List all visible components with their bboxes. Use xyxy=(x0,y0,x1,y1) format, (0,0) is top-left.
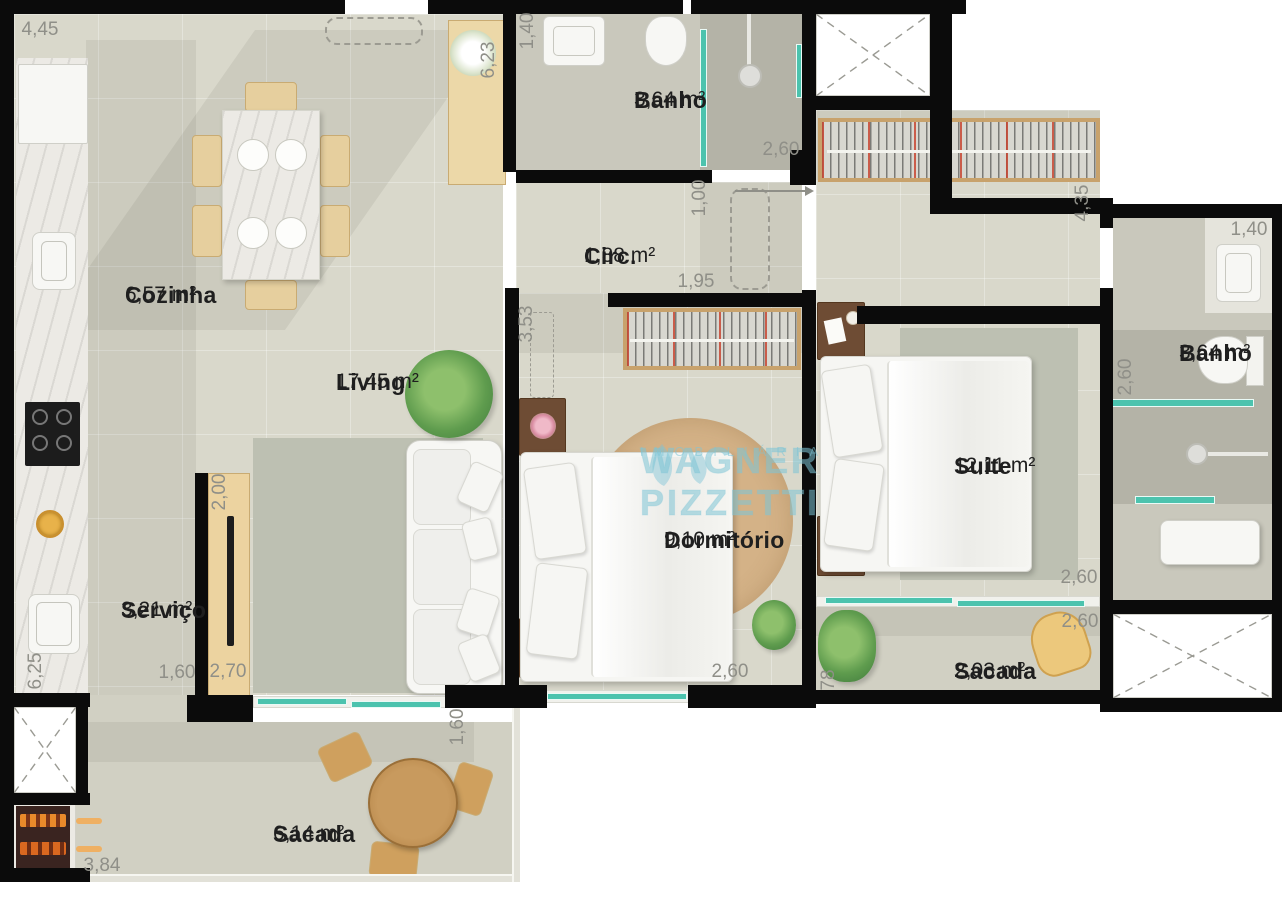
shaft xyxy=(14,707,76,793)
wall xyxy=(503,14,516,172)
tank-basin xyxy=(36,602,72,646)
living-sliding-glass xyxy=(258,699,346,704)
shower-glass xyxy=(1136,497,1214,503)
fruit-bowl xyxy=(36,510,64,538)
wall xyxy=(857,306,1100,324)
bbq-handle xyxy=(76,818,102,824)
room-area: 6,57 m² xyxy=(125,283,196,307)
balcony-table xyxy=(368,758,458,848)
suite-sliding-glass xyxy=(826,598,952,603)
dining-chair xyxy=(192,135,222,187)
dimension-label: 1,60 xyxy=(447,709,469,746)
toilet xyxy=(645,16,687,66)
wall xyxy=(1100,288,1113,708)
room-area: 17,45 m² xyxy=(336,370,419,394)
dimension-label: 2,60 xyxy=(712,661,749,683)
dining-chair xyxy=(245,82,297,112)
room-area: 3,21 m² xyxy=(121,598,192,622)
living-sliding-glass xyxy=(352,702,440,707)
dimension-label: 2,60 xyxy=(1062,611,1099,633)
flowers xyxy=(530,413,556,439)
nightstand xyxy=(519,398,566,456)
pillow xyxy=(523,462,587,560)
wall xyxy=(1113,204,1272,218)
room-area: 1,88 m² xyxy=(584,244,655,268)
dimension-label: 4,45 xyxy=(22,19,59,41)
shower-glass xyxy=(797,45,801,97)
wall xyxy=(608,293,808,307)
dimension-label: 6,25 xyxy=(25,653,47,690)
sofa-cushion xyxy=(413,529,471,605)
shaft xyxy=(1113,614,1272,698)
wall xyxy=(0,693,90,707)
dining-table xyxy=(222,110,320,280)
wall xyxy=(0,0,345,14)
burner xyxy=(32,435,48,451)
dimension-label: 2,60 xyxy=(763,139,800,161)
burner xyxy=(56,409,72,425)
wall xyxy=(802,14,816,166)
balcony-railing xyxy=(512,706,520,882)
entry-arrow-head xyxy=(805,186,814,196)
wall-frame xyxy=(683,0,691,14)
wall xyxy=(505,288,519,708)
tv-wall xyxy=(195,473,208,697)
wall xyxy=(802,690,1113,704)
shower-head xyxy=(738,64,762,88)
plate xyxy=(237,217,269,249)
sink-basin xyxy=(41,241,67,281)
kitchen-sink xyxy=(32,232,76,290)
wall xyxy=(428,0,966,14)
shaft-x-icon xyxy=(816,14,930,96)
dimension-label: 2,00 xyxy=(209,474,231,511)
wall xyxy=(516,170,712,183)
entry-door-swing xyxy=(730,188,770,290)
dimension-label: 1,40 xyxy=(517,13,539,50)
bbq-skewers xyxy=(20,814,66,827)
dining-chair xyxy=(245,280,297,310)
bbq-skewers xyxy=(20,842,66,855)
wall xyxy=(0,0,14,882)
wall xyxy=(806,96,952,110)
shaft-x-icon xyxy=(14,707,76,793)
shower-head xyxy=(1186,443,1208,465)
dimension-label: 3,53 xyxy=(516,306,538,343)
suite-closet xyxy=(818,118,1100,182)
tv xyxy=(227,516,234,646)
wall xyxy=(930,14,952,214)
wall xyxy=(1272,204,1282,710)
wall xyxy=(0,793,90,805)
burner xyxy=(32,409,48,425)
dimension-label: 1,60 xyxy=(159,662,196,684)
shower-glass xyxy=(1113,400,1253,406)
entry-arrow xyxy=(735,190,807,192)
wall xyxy=(187,695,253,722)
dormitorio-window-glass xyxy=(548,694,686,699)
sink-basin xyxy=(1225,253,1252,293)
bath-sink xyxy=(543,16,605,66)
bath-sink xyxy=(1216,244,1261,302)
laundry-tank xyxy=(28,594,80,654)
dimension-label: 2,60 xyxy=(1115,359,1137,396)
sofa xyxy=(406,440,502,694)
dimension-label: 2,60 xyxy=(1061,567,1098,589)
dormitorio-plant xyxy=(752,600,796,650)
paper xyxy=(824,317,847,344)
wall xyxy=(0,868,90,882)
room-area: 9,10 m² xyxy=(664,528,735,552)
floor-service-door xyxy=(88,695,188,722)
wall xyxy=(1113,600,1272,614)
plate xyxy=(237,139,269,171)
dining-chair xyxy=(192,205,222,257)
closet-rail xyxy=(630,339,793,342)
cooktop xyxy=(25,402,80,466)
shaft-x-icon xyxy=(1113,614,1272,698)
room-area: 3,64 m² xyxy=(634,88,705,112)
dimension-label: 1,40 xyxy=(1231,219,1268,241)
wall xyxy=(1100,698,1282,712)
room-area: 12,11 m² xyxy=(954,454,1035,478)
pillow xyxy=(823,458,885,552)
pillow xyxy=(820,364,883,459)
shower-arm xyxy=(1208,452,1268,456)
pillow xyxy=(526,562,589,660)
dimension-label: 3,84 xyxy=(84,855,121,877)
burner xyxy=(56,435,72,451)
sink-basin xyxy=(553,26,595,56)
dimension-label: 1,95 xyxy=(678,271,715,293)
wall xyxy=(445,685,547,708)
dimension-label: 1,00 xyxy=(689,180,711,217)
fridge xyxy=(18,64,88,144)
dining-chair xyxy=(320,205,350,257)
dining-chair xyxy=(320,135,350,187)
plate xyxy=(275,217,307,249)
dimension-label: 2,70 xyxy=(210,661,247,683)
shaft xyxy=(816,14,930,96)
room-area: 6,14 m² xyxy=(273,822,344,846)
room-area: 2,03 m² xyxy=(954,659,1025,683)
plate xyxy=(275,139,307,171)
watermark-subtext: IMOBILIÁRIA xyxy=(640,444,828,459)
dimension-label: 4,35 xyxy=(1072,185,1094,222)
bbq-handle xyxy=(76,846,102,852)
wall xyxy=(1100,198,1113,228)
dormitorio-closet xyxy=(623,308,801,370)
shower-pipe xyxy=(747,14,751,70)
dimension-label: 6,23 xyxy=(478,42,500,79)
room-area: 3,64 m² xyxy=(1179,341,1250,365)
suite-sliding-glass xyxy=(958,601,1084,606)
dashed-placeholder xyxy=(325,17,423,45)
floor-plan: Cozinha 6,57 m² Banho 3,64 m² Circ. 1,88… xyxy=(0,0,1282,900)
bbq-grill xyxy=(16,806,70,868)
anteroom-table xyxy=(1160,520,1260,565)
living-plant xyxy=(405,350,493,438)
closet-rail xyxy=(827,150,1090,153)
wall xyxy=(76,707,88,793)
dimension-label: 78 xyxy=(818,669,840,690)
wall xyxy=(688,685,802,708)
